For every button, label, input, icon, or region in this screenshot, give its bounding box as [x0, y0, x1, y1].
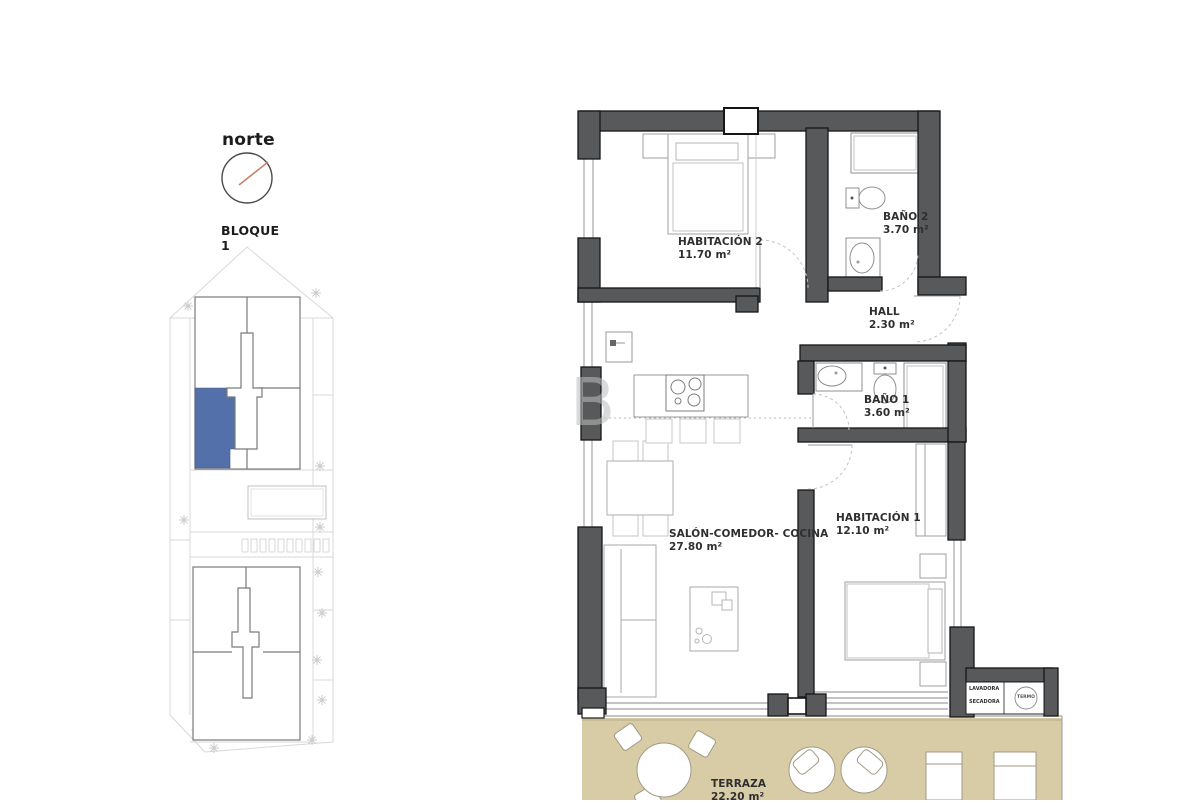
terrace-armchair-2	[841, 747, 887, 793]
room-area: 11.70 m²	[678, 249, 763, 262]
site-building-1	[195, 297, 300, 469]
site-pool	[248, 486, 326, 519]
room-area: 2.30 m²	[869, 319, 915, 332]
room-name: HABITACIÓN 2	[678, 236, 763, 249]
dryer-label: SECADORA	[969, 699, 1000, 705]
wall-pillar	[724, 108, 758, 134]
window-living-lower	[584, 440, 592, 528]
block-title: BLOQUE 1	[221, 223, 291, 253]
sofa	[604, 545, 656, 697]
site-plan	[170, 247, 333, 753]
terrace-lounger-2	[994, 752, 1036, 800]
apartment-floorplan	[578, 108, 1062, 800]
door-bathroom1	[813, 394, 849, 430]
livingroom-furniture	[604, 441, 738, 697]
compass-north-label: norte	[222, 130, 274, 150]
door-bathroom2	[880, 253, 918, 291]
coffee-table	[690, 587, 738, 651]
room-area: 22.20 m²	[711, 791, 766, 803]
room-name: BAÑO 1	[864, 394, 910, 407]
room-label-bedroom1: HABITACIÓN 1 12.10 m²	[836, 512, 921, 537]
cooktop	[666, 375, 704, 411]
room-area: 27.80 m²	[669, 541, 828, 554]
highlighted-unit	[195, 388, 235, 468]
room-name: BAÑO 2	[883, 211, 929, 224]
room-name: TERRAZA	[711, 778, 766, 791]
room-label-bathroom2: BAÑO 2 3.70 m²	[883, 211, 929, 236]
site-parking	[242, 539, 329, 552]
compass-icon	[222, 153, 272, 203]
room-area: 3.60 m²	[864, 407, 910, 420]
terrace-lounger-1	[926, 752, 962, 800]
sink-1	[816, 363, 862, 391]
room-label-living: SALÓN-COMEDOR- COCINA 27.80 m²	[669, 528, 828, 553]
door-bedroom1	[808, 445, 852, 489]
heater-label: TERMO	[1015, 695, 1037, 700]
washer-label: LAVADORA	[969, 686, 999, 692]
site-building-2	[193, 567, 300, 740]
door-entrance	[914, 296, 960, 342]
window-bedroom2	[578, 158, 600, 239]
room-label-bathroom1: BAÑO 1 3.60 m²	[864, 394, 910, 419]
floorplan-canvas	[0, 0, 1200, 800]
bedroom2-furniture	[643, 134, 775, 234]
room-label-hall: HALL 2.30 m²	[869, 306, 915, 331]
room-label-bedroom2: HABITACIÓN 2 11.70 m²	[678, 236, 763, 261]
kitchen-sink-unit	[606, 332, 632, 362]
room-label-terrace: TERRAZA 22.20 m²	[711, 778, 766, 803]
bathroom2-furniture	[846, 133, 919, 278]
bedroom1-furniture	[845, 444, 946, 686]
room-name: HALL	[869, 306, 915, 319]
room-area: 12.10 m²	[836, 525, 921, 538]
terrace-armchair-1	[789, 747, 835, 793]
bar-stools	[646, 419, 740, 443]
toilet-2	[846, 187, 885, 209]
window-living-upper	[584, 302, 592, 368]
room-name: SALÓN-COMEDOR- COCINA	[669, 528, 828, 541]
dining-set	[607, 441, 673, 536]
room-name: HABITACIÓN 1	[836, 512, 921, 525]
room-area: 3.70 m²	[883, 224, 929, 237]
window-bedroom1-side	[954, 540, 961, 627]
door-bedroom2	[760, 240, 808, 288]
sink-2	[846, 238, 880, 278]
glass-bedroom1-terrace	[813, 692, 948, 698]
